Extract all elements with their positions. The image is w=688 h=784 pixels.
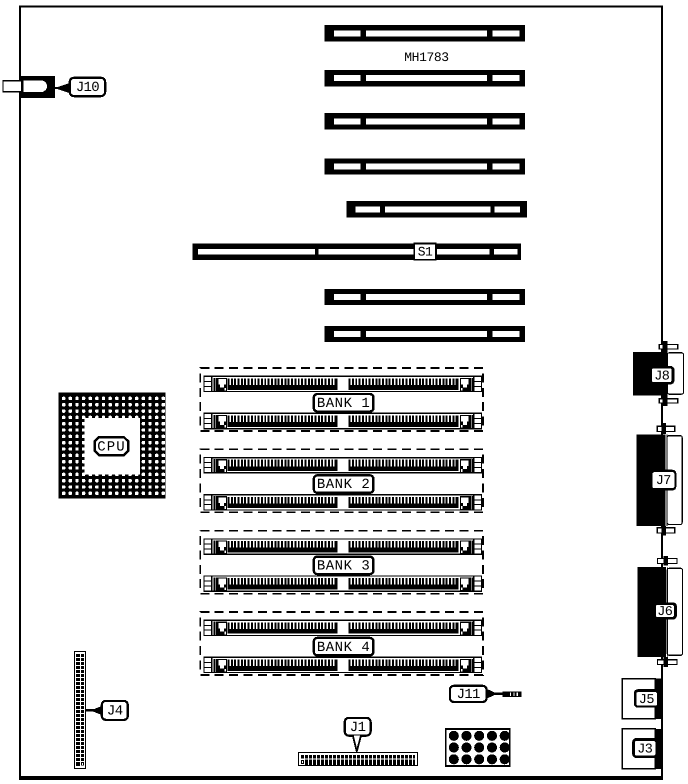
svg-text:BANK 1: BANK 1 bbox=[317, 396, 370, 412]
svg-text:J3: J3 bbox=[637, 742, 653, 757]
svg-text:J1: J1 bbox=[350, 720, 366, 736]
svg-text:BANK 4: BANK 4 bbox=[317, 640, 370, 656]
svg-text:BANK 2: BANK 2 bbox=[317, 477, 370, 493]
svg-text:CPU: CPU bbox=[97, 439, 126, 455]
svg-text:J5: J5 bbox=[639, 693, 655, 708]
svg-text:J7: J7 bbox=[656, 474, 672, 489]
svg-text:S1: S1 bbox=[418, 245, 433, 260]
svg-text:BANK 3: BANK 3 bbox=[317, 559, 370, 575]
svg-text:J8: J8 bbox=[654, 369, 670, 384]
svg-text:MH1783: MH1783 bbox=[404, 50, 448, 65]
svg-text:J11: J11 bbox=[457, 687, 480, 703]
svg-text:J4: J4 bbox=[107, 704, 123, 720]
svg-text:J10: J10 bbox=[76, 80, 99, 96]
svg-text:J6: J6 bbox=[657, 605, 673, 620]
